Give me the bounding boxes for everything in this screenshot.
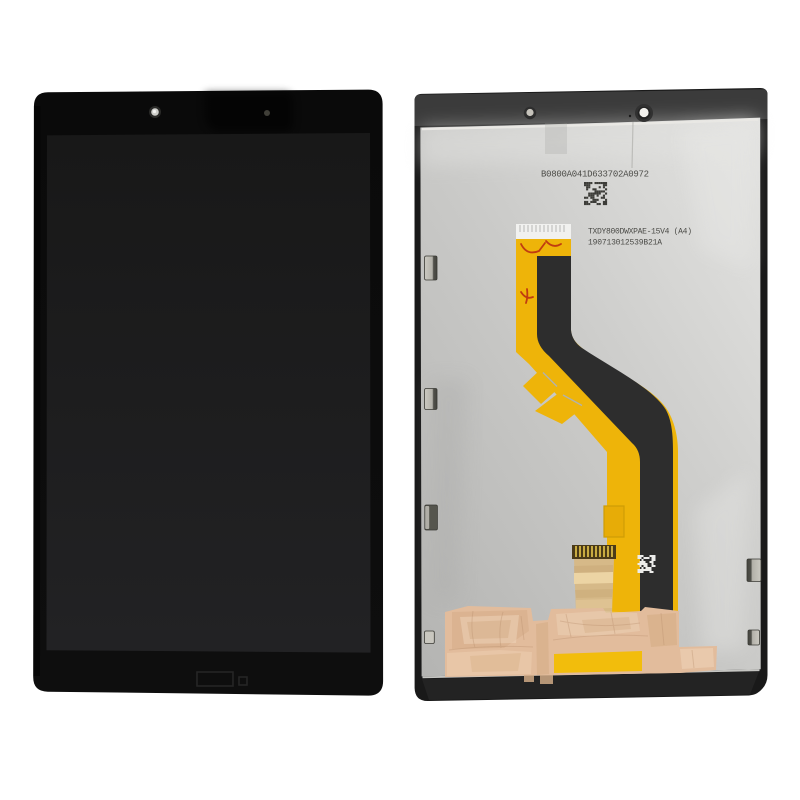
svg-text:TXDY800DWXPAE-15V4 (A4): TXDY800DWXPAE-15V4 (A4) (588, 228, 692, 237)
svg-text:190713012539B21A: 190713012539B21A (588, 239, 662, 248)
svg-text:B0800A041D633702A0972: B0800A041D633702A0972 (541, 170, 649, 180)
